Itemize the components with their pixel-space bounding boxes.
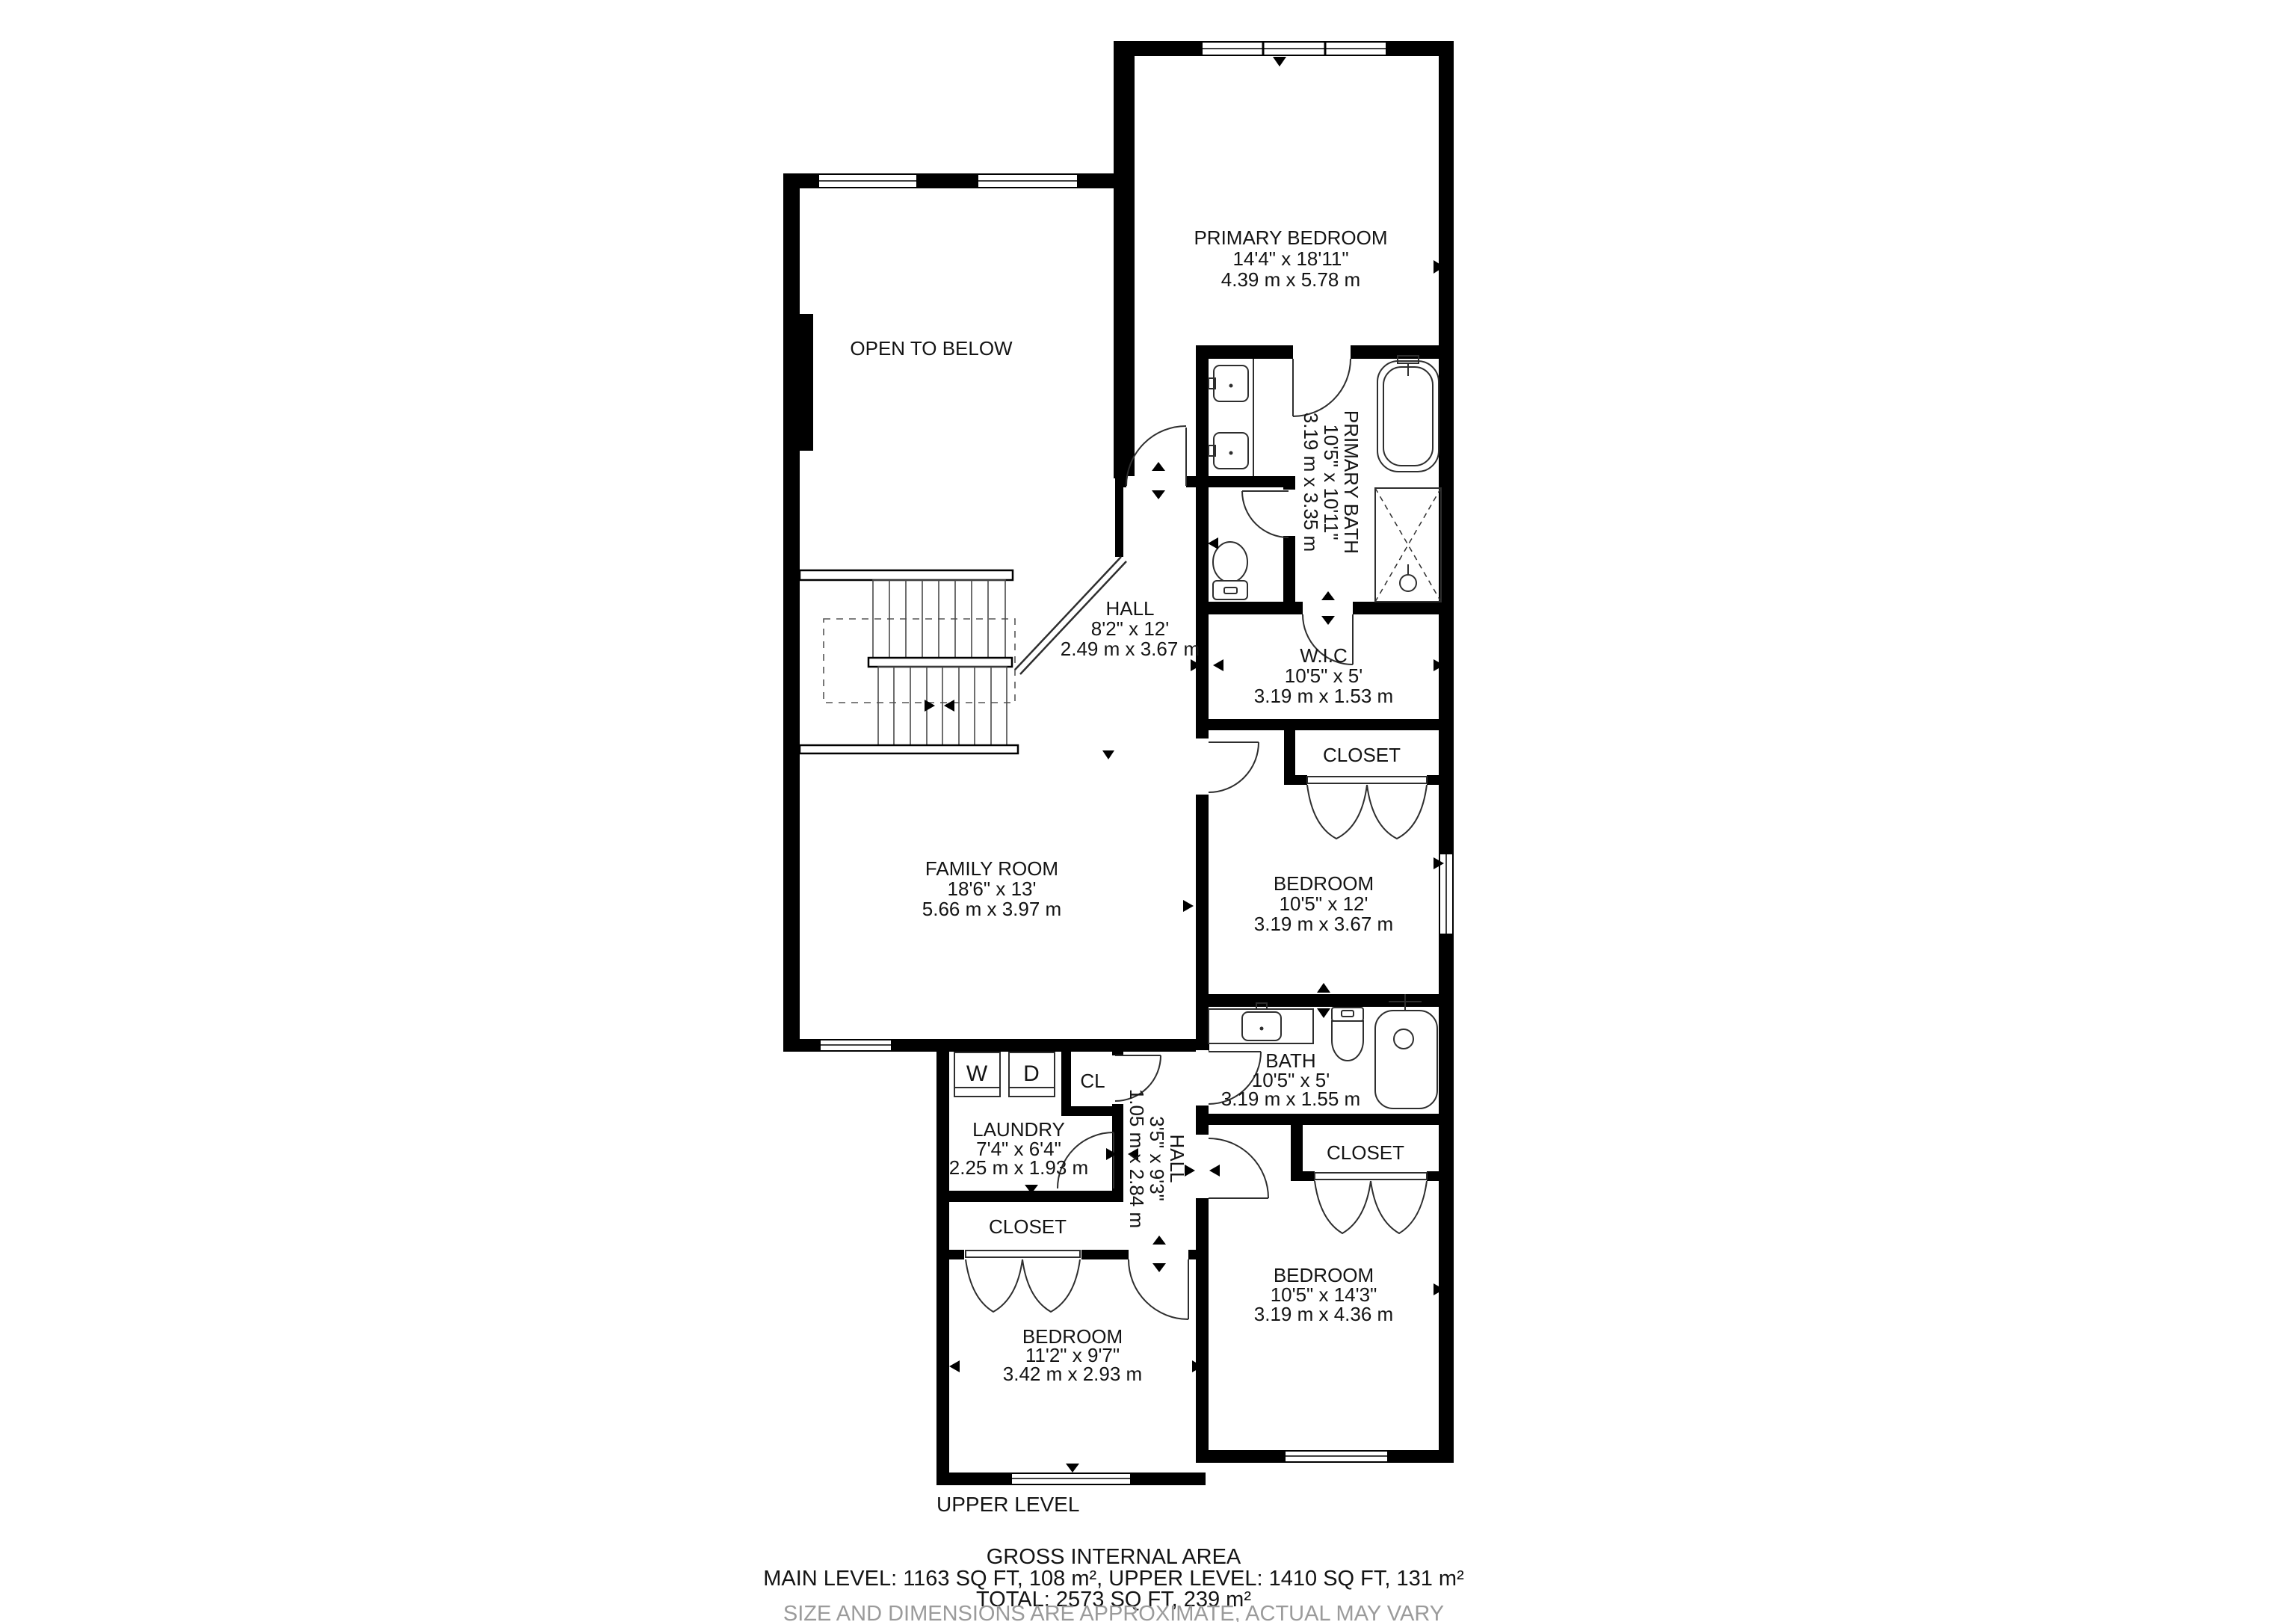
wall-fireplace-chase	[791, 314, 813, 451]
svg-text:18'6" x 13': 18'6" x 13'	[948, 878, 1037, 900]
wall-primary-bedroom-left	[1114, 41, 1135, 478]
wall-laundry-bottom	[936, 1191, 1123, 1202]
opening-wc-door	[1283, 490, 1295, 536]
sink-icon	[1214, 433, 1248, 469]
sink-icon	[1214, 366, 1248, 401]
svg-text:FAMILY ROOM: FAMILY ROOM	[925, 857, 1058, 880]
shower-icon	[1375, 488, 1441, 602]
svg-text:HALL: HALL	[1105, 597, 1154, 620]
wall-closet-bl-seg1	[936, 1250, 964, 1259]
marker-arrow-icon	[1317, 983, 1330, 993]
window-bedroom-mid	[1439, 854, 1453, 934]
marker-arrow-icon	[1208, 537, 1218, 549]
label-cl: CL	[1080, 1070, 1105, 1092]
wall-cl-bottom	[1061, 1106, 1123, 1116]
label-laundry: LAUNDRY 7'4" x 6'4" 2.25 m x 1.93 m	[949, 1118, 1088, 1179]
door-primary-bath	[1293, 359, 1351, 416]
stair-rail-mid	[868, 658, 1012, 667]
wall-stairwell-post	[1115, 478, 1123, 557]
svg-text:2.49 m x 3.67 m: 2.49 m x 3.67 m	[1061, 638, 1200, 660]
window-bedroom-br	[1285, 1451, 1388, 1462]
label-family-room: FAMILY ROOM 18'6" x 13' 5.66 m x 3.97 m	[922, 857, 1061, 920]
wall-closet-br-left	[1291, 1125, 1303, 1181]
label-washer: W	[966, 1061, 988, 1086]
opening-primary-alcove	[1126, 476, 1186, 487]
stair-treads-lower	[878, 667, 1007, 745]
svg-text:3.19 m x 1.55 m: 3.19 m x 1.55 m	[1221, 1088, 1360, 1110]
window-family-room	[820, 1040, 892, 1051]
label-primary-bath: PRIMARY BATH 10'5" x 10'11" 3.19 m x 3.3…	[1300, 410, 1363, 554]
window-open-below-1	[818, 174, 917, 188]
toilet-icon	[1213, 542, 1247, 599]
svg-text:4.39 m x 5.78 m: 4.39 m x 5.78 m	[1221, 268, 1360, 291]
floorplan: OPEN TO BELOW PRIMARY BEDROOM 14'4" x 18…	[0, 0, 2296, 1622]
wall-closet-mid-jamb-l	[1295, 775, 1307, 785]
wall-wic-bottom	[1196, 719, 1454, 730]
bath-vanity	[1209, 1003, 1313, 1043]
footer: UPPER LEVEL GROSS INTERNAL AREA MAIN LEV…	[763, 1493, 1464, 1622]
marker-arrow-icon	[1152, 490, 1165, 499]
marker-arrow-icon	[1152, 1263, 1166, 1272]
svg-text:3.19 m x 3.35 m: 3.19 m x 3.35 m	[1300, 413, 1322, 552]
gross-area-title: GROSS INTERNAL AREA	[987, 1545, 1241, 1569]
marker-arrow-icon	[1321, 591, 1335, 600]
wall-closet-bl-seg2	[1081, 1250, 1129, 1259]
wall-cl-post	[1112, 1046, 1123, 1055]
svg-text:3.19 m x 1.53 m: 3.19 m x 1.53 m	[1254, 685, 1393, 707]
svg-text:2.25 m x 1.93 m: 2.25 m x 1.93 m	[949, 1156, 1088, 1179]
label-closet-br: CLOSET	[1327, 1141, 1404, 1164]
marker-arrow-icon	[1321, 616, 1335, 625]
wall-lowerleft-exterior	[936, 1039, 949, 1485]
marker-arrow-icon	[1209, 1165, 1220, 1177]
svg-text:PRIMARY BATH: PRIMARY BATH	[1340, 410, 1363, 554]
marker-arrow-icon	[1152, 462, 1165, 471]
label-primary-bedroom: PRIMARY BEDROOM 14'4" x 18'11" 4.39 m x …	[1194, 226, 1387, 291]
svg-text:14'4" x 18'11": 14'4" x 18'11"	[1232, 247, 1348, 270]
opening-wic-door	[1303, 602, 1353, 614]
bifold-closet-br	[1315, 1173, 1427, 1233]
wall-bedroom-bath	[1196, 994, 1454, 1007]
stair-rail-bottom	[800, 745, 1018, 753]
svg-text:8'2" x 12': 8'2" x 12'	[1091, 617, 1169, 640]
svg-text:10'5" x 12': 10'5" x 12'	[1280, 892, 1368, 915]
svg-text:10'5" x 5': 10'5" x 5'	[1285, 664, 1363, 687]
bifold-closet-mid	[1307, 777, 1427, 839]
label-open-to-below: OPEN TO BELOW	[850, 337, 1013, 360]
wall-right-exterior	[1439, 41, 1454, 1463]
door-bedroom-mid	[1209, 742, 1259, 792]
marker-arrow-icon	[925, 700, 935, 712]
wall-closet-br-jamb-l	[1303, 1171, 1315, 1181]
marker-arrow-icon	[1273, 57, 1286, 67]
opening-bedroom-br	[1196, 1135, 1209, 1198]
svg-text:10'5" x 10'11": 10'5" x 10'11"	[1320, 424, 1342, 540]
wall-closet-mid-jamb-r	[1427, 775, 1439, 785]
svg-text:HALL: HALL	[1166, 1134, 1188, 1182]
wall-cl-left	[1061, 1039, 1071, 1106]
marker-arrow-icon	[949, 1360, 960, 1372]
svg-text:3.19 m x 3.67 m: 3.19 m x 3.67 m	[1254, 913, 1393, 935]
wall-closet-mid-left	[1284, 730, 1295, 785]
bathtub-icon	[1375, 994, 1437, 1108]
svg-text:3.19 m x 4.36 m: 3.19 m x 4.36 m	[1254, 1303, 1393, 1325]
primary-vanity	[1209, 359, 1253, 476]
wall-left-exterior	[783, 173, 800, 1052]
window-bedroom-bl	[1011, 1473, 1131, 1484]
bathtub-icon	[1377, 356, 1439, 472]
sink-icon	[1242, 1012, 1281, 1040]
disclaimer: SIZE AND DIMENSIONS ARE APPROXIMATE, ACT…	[783, 1602, 1444, 1622]
label-bedroom-br: BEDROOM 10'5" x 14'3" 3.19 m x 4.36 m	[1254, 1264, 1393, 1325]
wall-closet-br-jamb-r	[1427, 1171, 1439, 1181]
opening-bath	[1196, 1050, 1209, 1106]
marker-arrow-icon	[1213, 659, 1223, 671]
marker-arrow-icon	[1066, 1464, 1079, 1473]
marker-arrow-icon	[1152, 1236, 1166, 1245]
label-closet-mid: CLOSET	[1323, 744, 1401, 766]
svg-text:3.42 m x 2.93 m: 3.42 m x 2.93 m	[1003, 1363, 1142, 1385]
wall-bath-bottom	[1196, 1114, 1454, 1125]
wall-closet-bl-seg3	[1188, 1250, 1206, 1259]
svg-text:PRIMARY BEDROOM: PRIMARY BEDROOM	[1194, 226, 1387, 249]
window-open-below-2	[978, 174, 1078, 188]
level-label: UPPER LEVEL	[936, 1493, 1079, 1516]
bifold-closet-bl	[966, 1251, 1080, 1312]
wall-central-vertical	[1196, 345, 1209, 1463]
label-hall-upper: HALL 8'2" x 12' 2.49 m x 3.67 m	[1061, 597, 1200, 660]
label-dryer: D	[1023, 1061, 1040, 1086]
svg-text:W.I.C: W.I.C	[1300, 644, 1348, 667]
opening-primary-bath-door	[1293, 345, 1351, 359]
window-primary-bedroom	[1202, 42, 1386, 55]
marker-arrow-icon	[944, 700, 954, 712]
opening-bedroom-mid	[1196, 738, 1209, 795]
marker-arrow-icon	[1102, 750, 1114, 759]
label-bedroom-mid: BEDROOM 10'5" x 12' 3.19 m x 3.67 m	[1254, 872, 1393, 935]
stair-rail-top	[800, 570, 1013, 580]
marker-arrow-icon	[1317, 1008, 1330, 1018]
svg-text:1.05 m x 2.84 m: 1.05 m x 2.84 m	[1126, 1089, 1148, 1228]
svg-text:BEDROOM: BEDROOM	[1274, 872, 1374, 895]
label-hall-lower: HALL 3'5" x 9'3" 1.05 m x 2.84 m	[1126, 1089, 1188, 1228]
marker-arrow-icon	[1183, 900, 1194, 912]
label-closet-bl: CLOSET	[989, 1215, 1067, 1238]
label-bedroom-bl: BEDROOM 11'2" x 9'7" 3.42 m x 2.93 m	[1003, 1325, 1142, 1385]
toilet-icon	[1332, 1008, 1363, 1061]
door-water-closet	[1242, 491, 1289, 537]
svg-text:3'5" x 9'3": 3'5" x 9'3"	[1146, 1116, 1168, 1201]
label-wic: W.I.C 10'5" x 5' 3.19 m x 1.53 m	[1254, 644, 1393, 707]
svg-text:5.66 m x 3.97 m: 5.66 m x 3.97 m	[922, 898, 1061, 920]
